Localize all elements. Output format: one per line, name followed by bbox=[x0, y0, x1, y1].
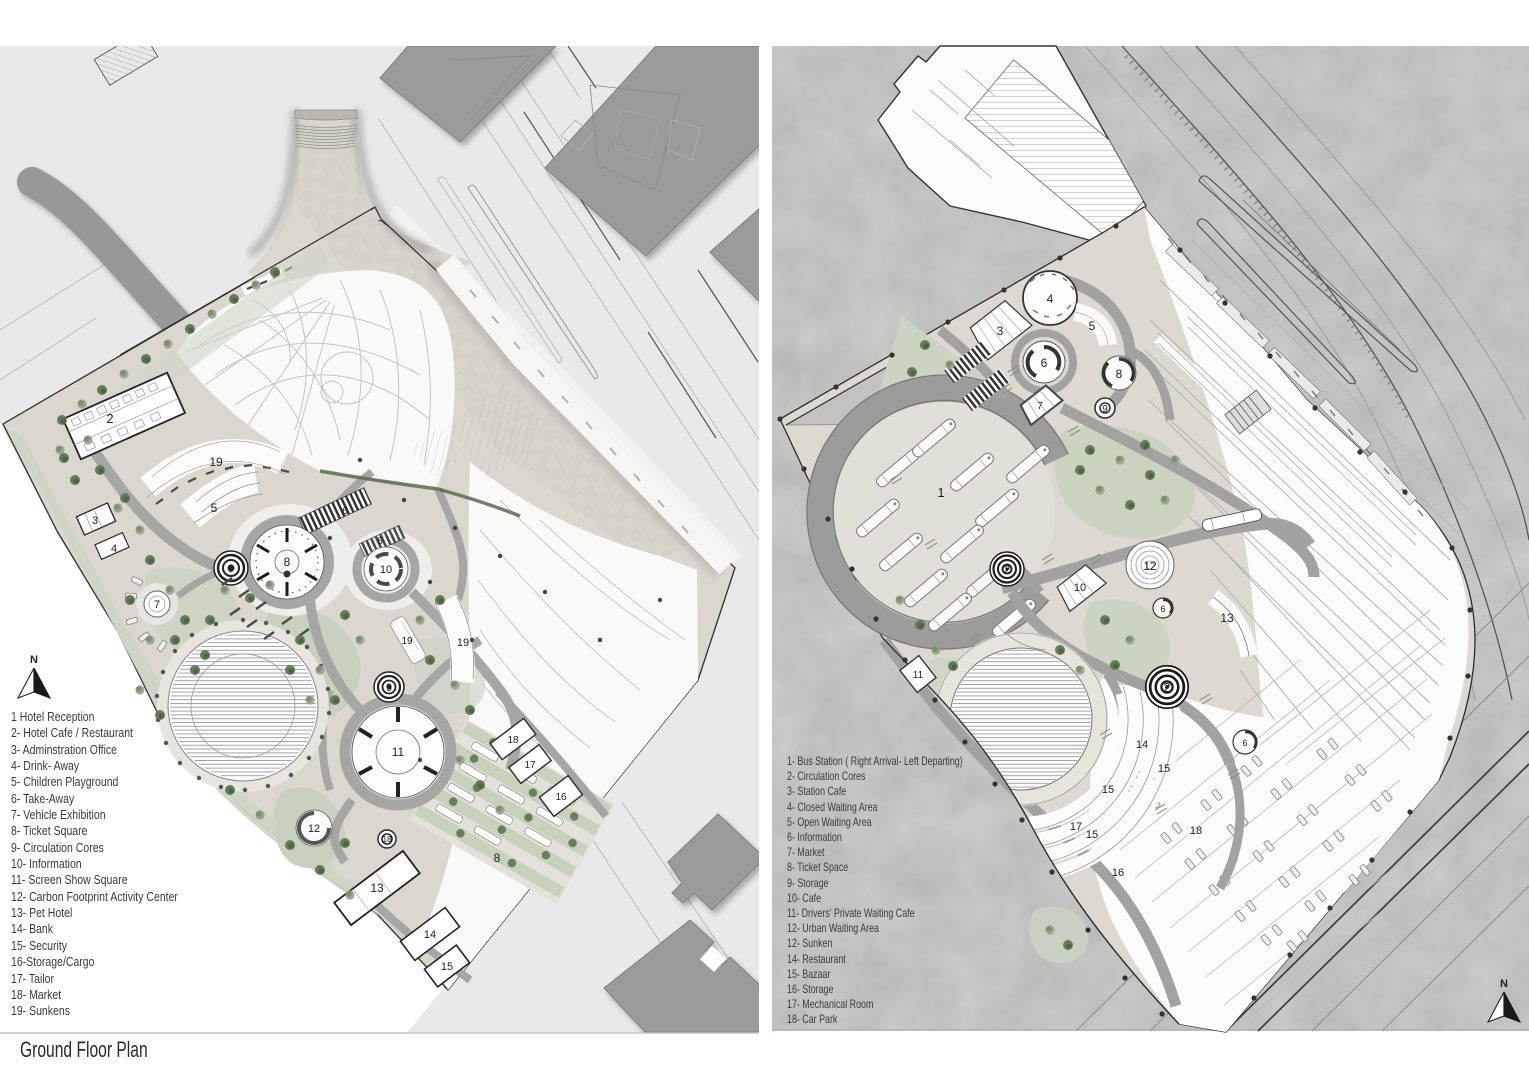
svg-text:18: 18 bbox=[1190, 825, 1202, 837]
svg-text:6: 6 bbox=[1041, 356, 1048, 370]
svg-text:18: 18 bbox=[507, 735, 519, 746]
svg-text:13: 13 bbox=[1220, 611, 1234, 625]
svg-text:6: 6 bbox=[1160, 604, 1165, 614]
svg-text:6: 6 bbox=[342, 506, 348, 517]
svg-text:3: 3 bbox=[997, 324, 1004, 338]
svg-text:8: 8 bbox=[284, 555, 291, 569]
svg-text:19: 19 bbox=[401, 636, 413, 647]
svg-text:11: 11 bbox=[913, 670, 924, 681]
svg-text:4: 4 bbox=[1047, 292, 1054, 306]
svg-text:9: 9 bbox=[386, 682, 392, 694]
svg-text:10: 10 bbox=[380, 564, 392, 576]
svg-text:17: 17 bbox=[524, 760, 536, 771]
svg-text:10: 10 bbox=[1074, 582, 1086, 594]
svg-text:4: 4 bbox=[111, 543, 117, 555]
svg-text:2: 2 bbox=[1163, 680, 1170, 695]
svg-text:9: 9 bbox=[228, 563, 234, 575]
svg-text:8: 8 bbox=[1116, 367, 1123, 381]
svg-text:11: 11 bbox=[392, 745, 405, 759]
svg-text:15: 15 bbox=[441, 961, 453, 973]
svg-text:16: 16 bbox=[555, 792, 567, 803]
svg-text:5: 5 bbox=[1089, 319, 1096, 333]
svg-text:13: 13 bbox=[370, 881, 384, 895]
svg-text:19: 19 bbox=[457, 637, 469, 649]
svg-text:15: 15 bbox=[1158, 763, 1170, 775]
svg-text:19: 19 bbox=[209, 455, 223, 469]
svg-text:15: 15 bbox=[1086, 829, 1098, 841]
svg-text:1: 1 bbox=[937, 485, 944, 500]
svg-text:8: 8 bbox=[494, 851, 501, 865]
svg-text:5: 5 bbox=[211, 501, 218, 515]
svg-text:7: 7 bbox=[154, 599, 160, 611]
svg-text:12: 12 bbox=[308, 823, 320, 835]
svg-text:18: 18 bbox=[383, 835, 392, 844]
svg-text:15: 15 bbox=[1102, 784, 1114, 796]
svg-text:16: 16 bbox=[1112, 867, 1124, 879]
svg-text:3: 3 bbox=[92, 515, 98, 527]
svg-text:6: 6 bbox=[377, 536, 383, 547]
svg-text:12: 12 bbox=[1143, 559, 1157, 573]
svg-text:9: 9 bbox=[1102, 404, 1108, 415]
svg-text:7: 7 bbox=[1037, 401, 1043, 412]
svg-text:14: 14 bbox=[1136, 739, 1148, 751]
svg-text:6: 6 bbox=[1242, 738, 1247, 748]
svg-text:17: 17 bbox=[1070, 821, 1082, 833]
svg-text:2: 2 bbox=[106, 411, 113, 426]
svg-text:2: 2 bbox=[1004, 563, 1011, 577]
svg-text:14: 14 bbox=[424, 929, 436, 941]
